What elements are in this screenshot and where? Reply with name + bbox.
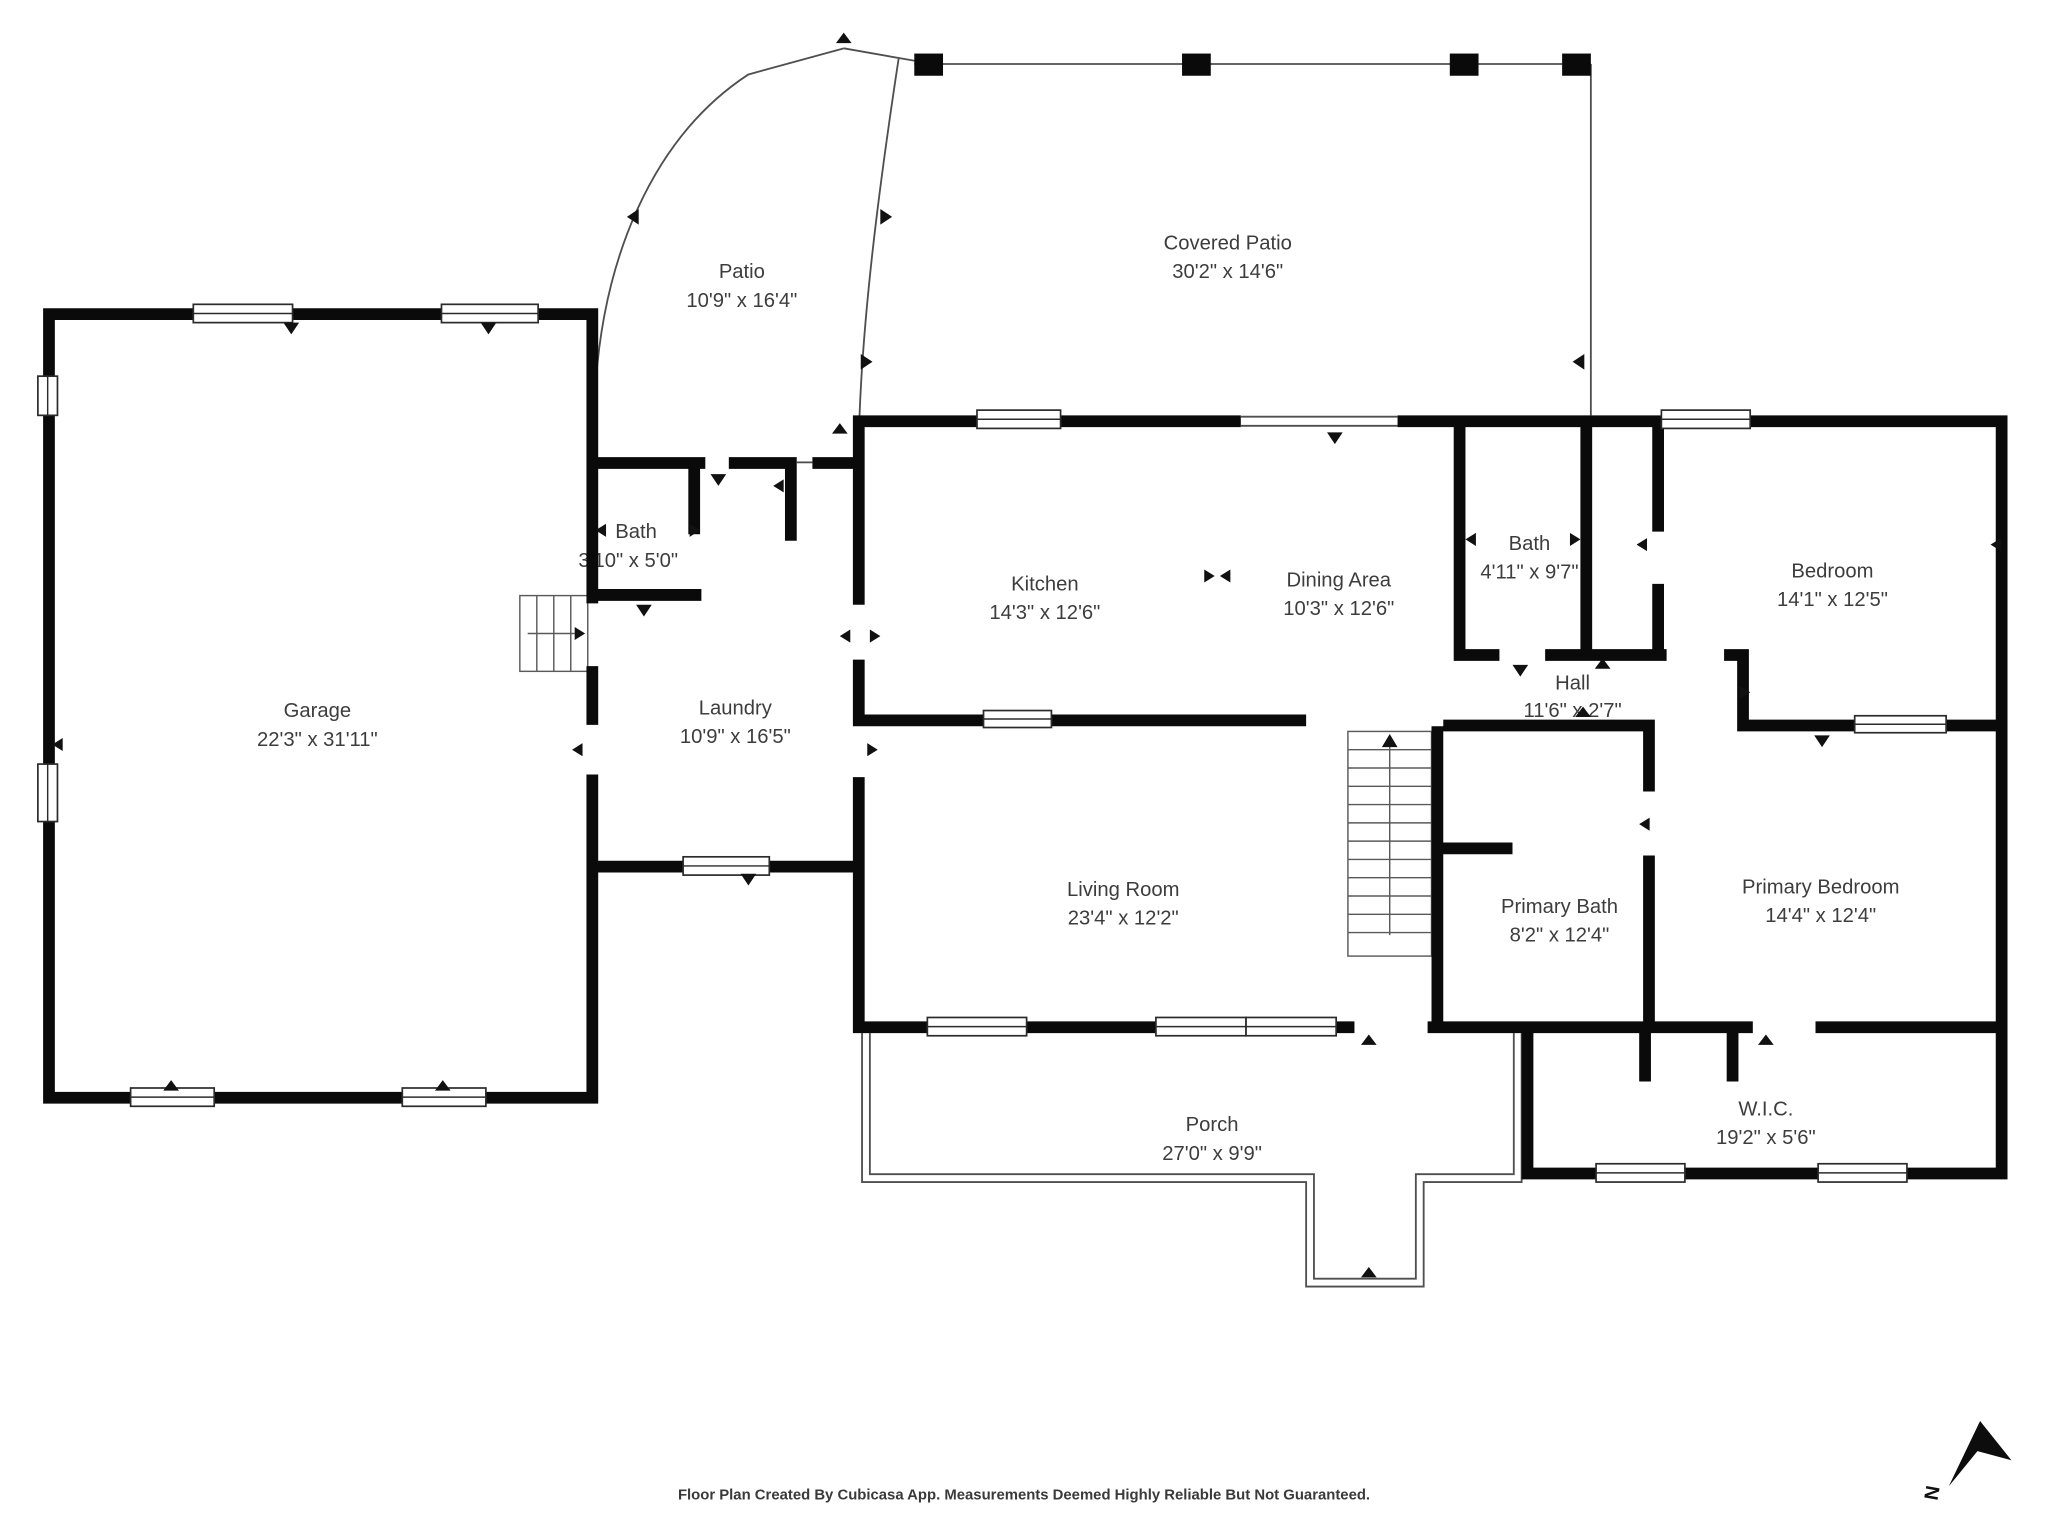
window-symbol (1818, 1164, 1907, 1182)
room-dims-wic: 19'2" x 5'6" (1716, 1127, 1816, 1149)
room-label-wic: W.I.C. (1738, 1098, 1793, 1120)
room-dims-hall: 11'6" x 2'7" (1523, 700, 1621, 722)
window-symbol (683, 857, 769, 875)
room-dims-primary-bath: 8'2" x 12'4" (1510, 925, 1610, 947)
window-symbol (193, 304, 292, 322)
room-dims-kitchen: 14'3" x 12'6" (989, 602, 1100, 624)
room-dims-living-room: 23'4" x 12'2" (1068, 908, 1179, 930)
main-stairs (1348, 731, 1432, 956)
room-dims-patio: 10'9" x 16'4" (686, 290, 797, 312)
room-label-garage: Garage (284, 700, 352, 722)
window-symbol (977, 410, 1061, 428)
room-label-patio: Patio (719, 261, 765, 283)
room-label-primary-bedroom: Primary Bedroom (1742, 876, 1899, 898)
patio-outline (596, 48, 899, 418)
window-symbol (441, 304, 538, 322)
room-dims-laundry: 10'9" x 16'5" (680, 726, 791, 748)
garage-stairs (520, 596, 588, 672)
compass-north-label: N (1919, 1484, 1943, 1502)
window-symbol (38, 764, 58, 821)
window-symbol (1855, 716, 1946, 733)
room-label-living-room: Living Room (1067, 879, 1179, 901)
window-symbol (1661, 410, 1750, 428)
room-dims-garage: 22'3" x 31'11" (257, 729, 378, 751)
room-dims-bedroom: 14'1" x 12'5" (1777, 589, 1888, 611)
window-symbol (1596, 1164, 1685, 1182)
window-symbol (1246, 1017, 1336, 1035)
room-dims-primary-bedroom: 14'4" x 12'4" (1765, 905, 1876, 927)
room-label-porch: Porch (1186, 1114, 1239, 1136)
compass-needle-icon (1949, 1421, 2012, 1486)
room-label-hall: Hall (1555, 673, 1590, 695)
floor-plan-page: Patio 10'9" x 16'4" Covered Patio 30'2" … (0, 0, 2048, 1536)
room-label-bath-small: Bath (615, 521, 657, 543)
room-label-dining: Dining Area (1286, 569, 1391, 591)
compass: N (1919, 1421, 2011, 1502)
room-label-bedroom: Bedroom (1791, 560, 1873, 582)
window-symbol (984, 711, 1052, 728)
window-symbol (38, 376, 58, 415)
floor-plan-drawing: Patio 10'9" x 16'4" Covered Patio 30'2" … (0, 0, 2048, 1536)
room-dims-porch: 27'0" x 9'9" (1162, 1143, 1262, 1165)
room-label-bath: Bath (1509, 533, 1551, 555)
room-dims-dining: 10'3" x 12'6" (1283, 598, 1394, 620)
room-dims-bath: 4'11" x 9'7" (1480, 562, 1578, 584)
window-symbol (1156, 1017, 1246, 1035)
window-symbol (927, 1017, 1026, 1035)
room-label-kitchen: Kitchen (1011, 573, 1079, 595)
window-symbol (402, 1088, 486, 1106)
room-label-covered-patio: Covered Patio (1164, 232, 1292, 254)
window-symbol (131, 1088, 215, 1106)
room-dims-covered-patio: 30'2" x 14'6" (1172, 261, 1283, 283)
room-label-primary-bath: Primary Bath (1501, 896, 1618, 918)
room-label-laundry: Laundry (699, 697, 773, 719)
footer-disclaimer: Floor Plan Created By Cubicasa App. Meas… (678, 1487, 1370, 1503)
direction-arrow-icons (52, 33, 2001, 1278)
